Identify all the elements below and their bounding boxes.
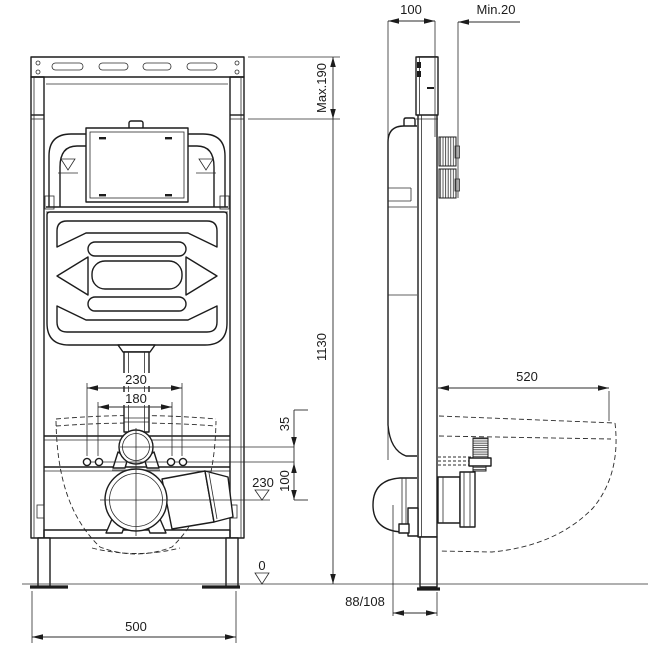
dim-label-projection: 520	[516, 369, 538, 384]
dim-label-outlet-level: 230	[252, 475, 274, 490]
dim-label-width: 500	[125, 619, 147, 634]
cistern-tank	[47, 212, 227, 352]
technical-drawing: 500 230 180 35	[0, 0, 650, 650]
frame-foot-side	[417, 537, 440, 589]
dim-label-bolt-inner: 180	[125, 391, 147, 406]
dim-label-top-adjust: Max.190	[314, 63, 329, 113]
dim-label-outlet-distance: 88/108	[345, 594, 385, 609]
flush-plate-window	[86, 121, 188, 202]
dim-label-wall-clearance: Min.20	[476, 2, 515, 17]
top-rail	[31, 57, 244, 77]
dim-label-bolt-outer: 230	[125, 372, 147, 387]
outlet-sleeve	[438, 472, 475, 527]
dim-label-outlet-offset: 100	[277, 470, 292, 492]
dim-label-flush-offset: 35	[277, 417, 292, 431]
dim-label-height: 1130	[314, 333, 329, 361]
dim-label-depth: 100	[400, 2, 422, 17]
dim-label-floor: 0	[258, 558, 265, 573]
